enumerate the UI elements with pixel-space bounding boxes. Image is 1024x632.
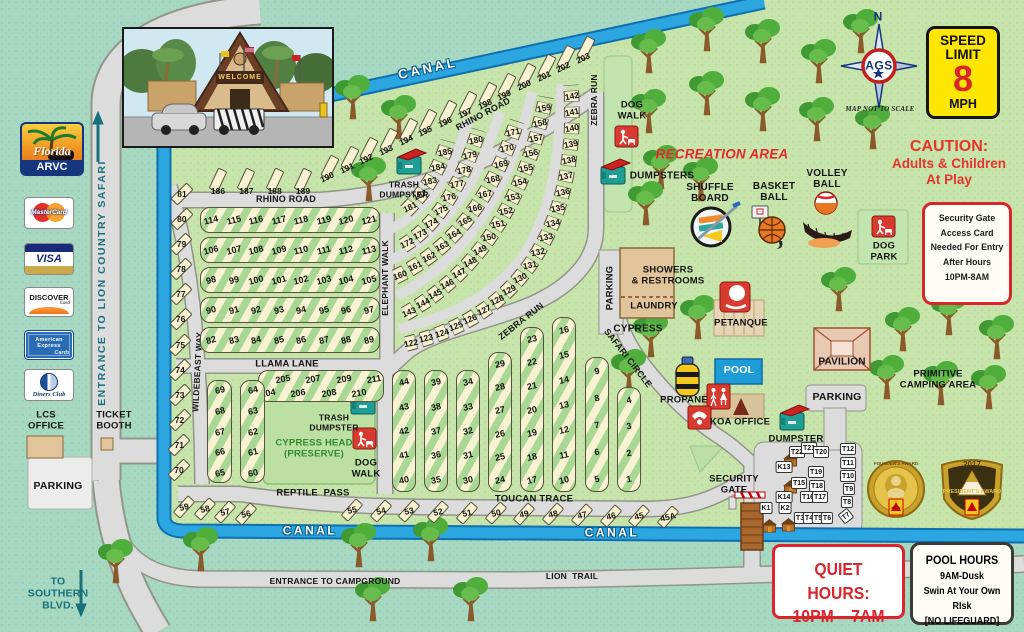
showers-building	[620, 248, 674, 318]
parking-stem-right	[824, 408, 846, 450]
dog-walk-icon	[615, 126, 638, 147]
parking-lot-left	[28, 457, 92, 509]
restrooms-icon	[707, 384, 730, 409]
phone-icon	[688, 406, 711, 429]
pavilion-icon	[814, 328, 870, 370]
dog-park-icon	[872, 216, 895, 237]
map-base-art	[0, 0, 1024, 632]
parking-lot-right	[806, 385, 866, 411]
campground-map: CANALCANALCANALRHINO ROADRHINO ROADZEBRA…	[0, 0, 1024, 632]
ticket-booth-building	[101, 438, 113, 450]
dog-walk-icon	[353, 428, 376, 449]
lcs-office-building	[27, 436, 63, 458]
